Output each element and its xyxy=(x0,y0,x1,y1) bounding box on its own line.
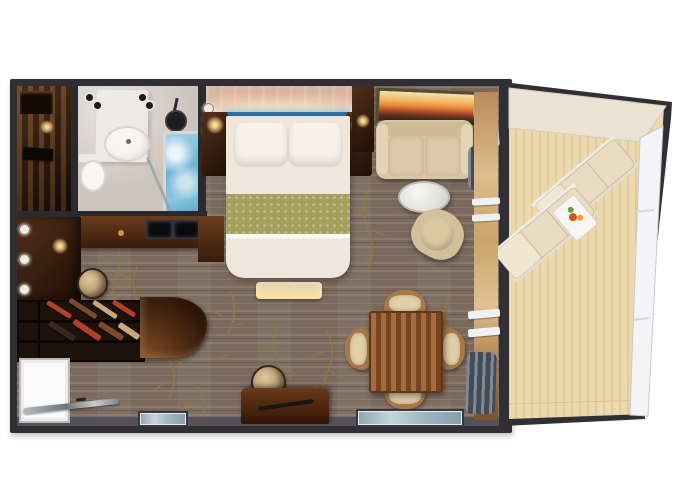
sink-faucet xyxy=(126,139,131,144)
dining-chair-right-seat xyxy=(443,333,460,365)
wardrobe-sconce-2 xyxy=(19,254,30,265)
vanity-stool xyxy=(77,268,108,299)
pillow-left xyxy=(235,123,287,165)
entry-bench xyxy=(23,147,54,161)
wardrobe-sconce-1 xyxy=(19,224,30,235)
bed-runner-green xyxy=(226,194,350,234)
small-window xyxy=(138,411,188,427)
entry-light-glow xyxy=(40,120,54,134)
dining-table xyxy=(369,311,443,393)
bathroom-ceiling-light-4 xyxy=(144,100,155,111)
coffee-table xyxy=(398,181,450,213)
dining-chair-top-seat xyxy=(389,295,421,312)
floorplan-canvas xyxy=(0,0,680,486)
tv-screen-left xyxy=(146,220,173,239)
sofa-arm-left xyxy=(377,124,388,174)
console-decor-item xyxy=(118,230,124,236)
shelf-item-shoe-1 xyxy=(46,300,72,319)
dining-chair-left xyxy=(345,328,370,370)
bed-foot-bench xyxy=(256,282,322,299)
console-side-return xyxy=(198,216,224,262)
shelf-vertical-divider xyxy=(38,302,40,360)
bathroom-ceiling-light-2 xyxy=(92,100,103,111)
door-pane-bar-1 xyxy=(472,197,500,205)
entry-console xyxy=(20,91,53,114)
sink-basin xyxy=(104,126,150,162)
shoe-shelf-unit xyxy=(17,300,145,362)
wardrobe-sconce-3 xyxy=(19,284,30,295)
closet-lamp-glow xyxy=(356,114,370,128)
sofa-seat-cushion-left xyxy=(388,136,424,176)
pillow-right xyxy=(289,123,341,165)
sofa xyxy=(376,120,473,179)
bed-sheet-fold xyxy=(226,234,350,238)
swivel-chair-seat xyxy=(415,212,460,257)
dining-chair-left-seat xyxy=(350,333,367,365)
bedside-lamp-left xyxy=(206,116,224,134)
toilet-bowl xyxy=(80,160,106,192)
tv-screen-right xyxy=(173,220,200,239)
wall-entry-bathroom xyxy=(71,86,78,214)
picture-window xyxy=(356,409,464,427)
curtain-lower xyxy=(465,351,497,414)
door-pane-bar-2 xyxy=(472,213,500,221)
sofa-back-cushion xyxy=(379,122,470,136)
sofa-seat-cushion-right xyxy=(425,136,461,176)
wardrobe-lamp-glow xyxy=(52,238,68,254)
balcony xyxy=(498,70,680,440)
shower-head xyxy=(165,110,187,132)
